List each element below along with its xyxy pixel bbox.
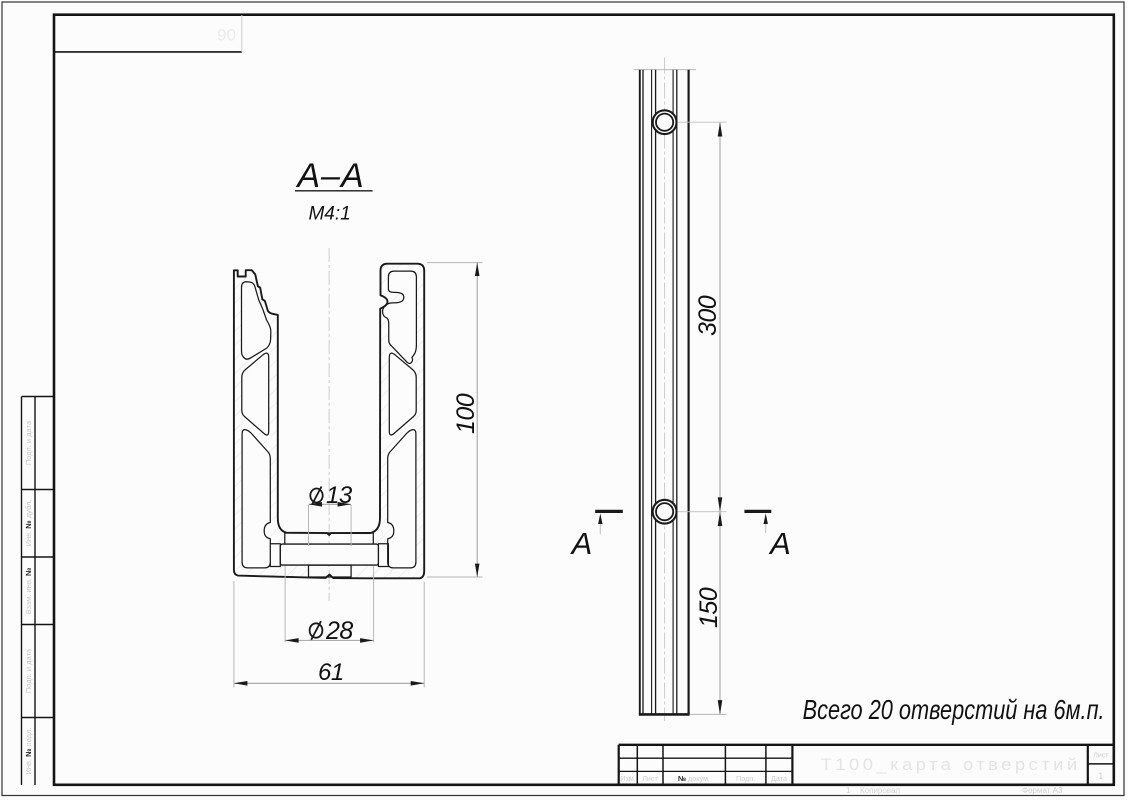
- svg-text:Взам. инв. №: Взам. инв. №: [24, 568, 33, 615]
- svg-text:150: 150: [695, 587, 723, 628]
- svg-text:1: 1: [846, 786, 851, 795]
- svg-text:А–А: А–А: [295, 157, 364, 195]
- svg-text:Дата: Дата: [771, 774, 787, 783]
- svg-text:61: 61: [318, 659, 344, 686]
- svg-text:Изм.: Изм.: [620, 774, 635, 783]
- svg-text:А: А: [570, 526, 593, 561]
- svg-text:Формат А3: Формат А3: [1022, 786, 1063, 795]
- svg-text:28: 28: [325, 617, 353, 645]
- svg-text:Подп. и дата: Подп. и дата: [24, 648, 33, 693]
- svg-text:Т100_карта отверстий: Т100_карта отверстий: [821, 756, 1081, 774]
- svg-text:Инв. № дубл.: Инв. № дубл.: [24, 500, 33, 547]
- svg-text:Копировал: Копировал: [860, 786, 900, 795]
- svg-text:Лист: Лист: [642, 774, 658, 783]
- svg-text:Лист: Лист: [1093, 753, 1109, 760]
- svg-text:1: 1: [1098, 771, 1103, 781]
- svg-text:Подп.: Подп.: [736, 774, 755, 783]
- svg-text:300: 300: [694, 295, 722, 336]
- svg-text:М4:1: М4:1: [308, 204, 350, 225]
- svg-text:№ докум.: № докум.: [678, 774, 710, 783]
- svg-text:90: 90: [217, 26, 236, 45]
- svg-text:13: 13: [326, 482, 353, 509]
- svg-text:Инв. № подл.: Инв. № подл.: [24, 727, 33, 774]
- svg-text:Подп. и дата: Подп. и дата: [24, 420, 33, 465]
- svg-text:А: А: [768, 526, 791, 561]
- svg-text:Всего 20 отверстий на 6м.п.: Всего 20 отверстий на 6м.п.: [803, 694, 1105, 725]
- svg-text:100: 100: [452, 393, 480, 434]
